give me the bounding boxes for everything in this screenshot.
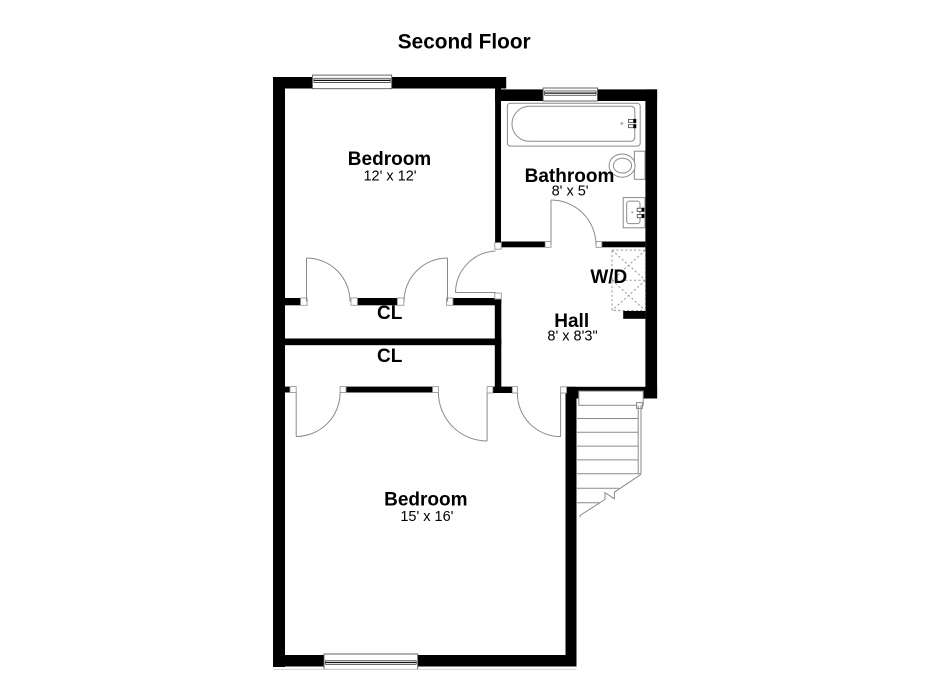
svg-text:8' x 8'3": 8' x 8'3" <box>547 329 597 345</box>
svg-text:15' x 16': 15' x 16' <box>400 509 453 525</box>
svg-text:W/D: W/D <box>590 267 627 288</box>
svg-text:8' x 5': 8' x 5' <box>552 184 589 200</box>
svg-text:Bedroom: Bedroom <box>384 490 467 511</box>
svg-text:CL: CL <box>377 346 403 367</box>
svg-text:Second Floor: Second Floor <box>398 30 531 53</box>
svg-text:12' x 12': 12' x 12' <box>363 169 416 185</box>
svg-text:Bedroom: Bedroom <box>348 149 431 170</box>
svg-text:CL: CL <box>377 303 403 324</box>
